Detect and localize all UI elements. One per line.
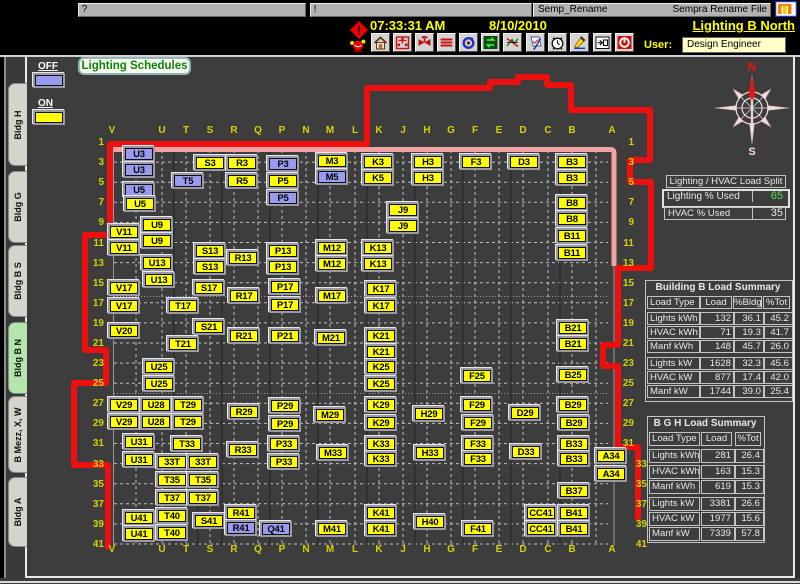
svg-text:N: N [748, 60, 757, 74]
svg-text:S: S [748, 146, 755, 158]
